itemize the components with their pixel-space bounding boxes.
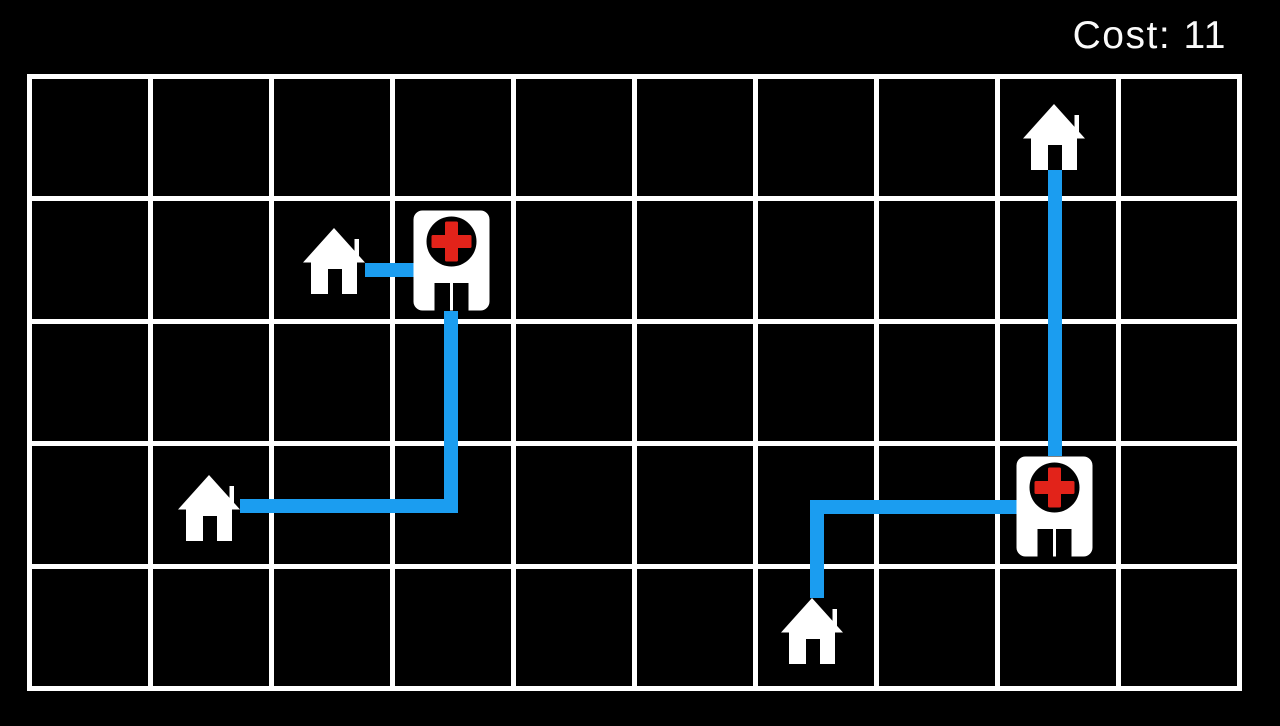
house-door	[203, 516, 217, 541]
grid-cell[interactable]	[274, 569, 390, 686]
house-icon	[781, 598, 843, 664]
grid-cell[interactable]	[879, 324, 995, 441]
house-icon	[178, 475, 240, 541]
grid-cell[interactable]	[758, 201, 874, 318]
grid-cell[interactable]	[758, 324, 874, 441]
grid-cell[interactable]	[153, 79, 269, 196]
house-4[interactable]	[1023, 104, 1085, 170]
grid-cell[interactable]	[32, 324, 148, 441]
hospital-door-right	[453, 283, 469, 311]
grid-cell[interactable]	[1121, 569, 1237, 686]
grid-cell[interactable]	[274, 324, 390, 441]
cost-label: Cost: 11	[1073, 14, 1227, 58]
grid-cell[interactable]	[637, 569, 753, 686]
house-3[interactable]	[781, 598, 843, 664]
grid-cell[interactable]	[516, 446, 632, 563]
grid-cell[interactable]	[758, 79, 874, 196]
grid-cell[interactable]	[32, 79, 148, 196]
grid-cell[interactable]	[1121, 201, 1237, 318]
hospital-door-left	[1038, 529, 1054, 557]
grid-cell[interactable]	[153, 569, 269, 686]
red-cross-icon	[1048, 468, 1061, 508]
grid-cell[interactable]	[32, 569, 148, 686]
grid-cell[interactable]	[637, 79, 753, 196]
grid-cell[interactable]	[516, 324, 632, 441]
grid-cell[interactable]	[395, 569, 511, 686]
house-door	[328, 269, 342, 294]
grid-cell[interactable]	[637, 324, 753, 441]
grid-cell[interactable]	[879, 79, 995, 196]
hospital-icon	[413, 210, 490, 311]
grid-cell[interactable]	[1000, 569, 1116, 686]
grid-cell[interactable]	[879, 201, 995, 318]
grid-cell[interactable]	[1121, 446, 1237, 563]
game-screen: Cost: 11	[0, 0, 1280, 726]
red-cross-icon	[445, 222, 458, 262]
hospital-2[interactable]	[1016, 456, 1093, 557]
path-house3-horizontal	[810, 500, 1017, 514]
grid-cell[interactable]	[879, 569, 995, 686]
hospital-1[interactable]	[413, 210, 490, 311]
house-door	[1048, 145, 1062, 170]
grid-cell[interactable]	[1121, 324, 1237, 441]
hospital-door-left	[435, 283, 451, 311]
grid-cell[interactable]	[637, 446, 753, 563]
path-house2-horizontal	[236, 499, 458, 513]
path-house4-vertical	[1048, 170, 1062, 456]
grid-cell[interactable]	[395, 79, 511, 196]
path-house3-vertical	[810, 500, 824, 604]
house-1[interactable]	[303, 228, 365, 294]
grid-cell[interactable]	[32, 201, 148, 318]
grid-cell[interactable]	[516, 201, 632, 318]
house-icon	[303, 228, 365, 294]
grid-cell[interactable]	[274, 79, 390, 196]
house-icon	[1023, 104, 1085, 170]
house-door	[806, 639, 820, 664]
grid-cell[interactable]	[32, 446, 148, 563]
path-house2-vertical	[444, 311, 458, 513]
hospital-door-right	[1056, 529, 1072, 557]
grid-cell[interactable]	[516, 79, 632, 196]
grid-cell[interactable]	[1121, 79, 1237, 196]
hospital-icon	[1016, 456, 1093, 557]
house-2[interactable]	[178, 475, 240, 541]
grid-cell[interactable]	[153, 201, 269, 318]
grid-cell[interactable]	[153, 324, 269, 441]
grid-cell[interactable]	[637, 201, 753, 318]
grid-cell[interactable]	[516, 569, 632, 686]
